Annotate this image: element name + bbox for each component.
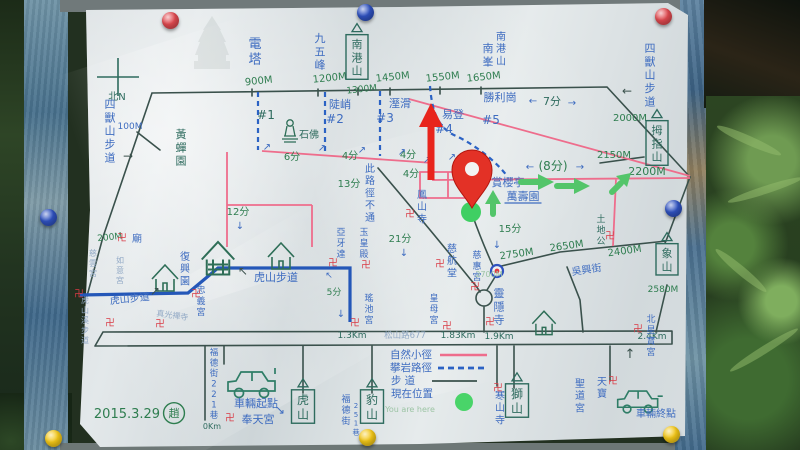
map-label: 萬壽園 [507, 189, 540, 203]
map-label-char: 雲 [89, 259, 97, 268]
map-label-char: 街 [341, 415, 350, 427]
temple-swastika-mark: 卍 [74, 289, 84, 300]
map-label-char: 園 [180, 275, 190, 287]
map-label-char: 南 [483, 42, 494, 55]
hand-drawn-arrow: ↖ [325, 271, 333, 281]
map-label: 慈雲宮 [89, 248, 97, 278]
map-label-char: 步 [81, 326, 89, 335]
map-label: 1550M [425, 70, 460, 85]
map-label-char: 航 [447, 254, 457, 267]
map-label-char: 山 [652, 151, 663, 164]
temple-swastika-mark: 卍 [633, 324, 643, 335]
map-label-char: 堂 [447, 267, 457, 279]
map-label-char: 隱 [494, 299, 505, 313]
temple-swastika-mark: 卍 [155, 319, 165, 330]
hand-drawn-arrow: → [568, 98, 576, 109]
hand-drawn-arrow: ↗ [150, 284, 160, 298]
map-label: #1 [257, 108, 275, 122]
map-label: 步 道 [391, 374, 416, 387]
map-label: 九五峰 [315, 32, 326, 72]
map-label: 7分 [543, 95, 561, 108]
shadow-top-right [704, 0, 800, 108]
temple-swastika-mark: 卍 [605, 231, 615, 242]
map-label-char: 不 [365, 201, 375, 212]
map-label: 13分 [338, 178, 361, 190]
map-label: 南港山 [496, 30, 506, 67]
map-label-char: 象 [662, 247, 673, 260]
palm-frond [728, 325, 800, 374]
map-label-char: 寺 [417, 213, 427, 225]
peak-triangle-icon [352, 24, 362, 32]
map-label-char: 虎 [297, 393, 309, 407]
map-label-char: 九 [315, 32, 326, 45]
car-start-icon [228, 368, 275, 398]
map-label: 如意宮 [116, 255, 124, 285]
temple-swastika-mark: 卍 [435, 259, 445, 270]
map-label: 土地公 [596, 213, 605, 247]
map-label: 易登 [442, 107, 464, 121]
map-label: 2580M [648, 285, 679, 295]
map-label: 900M [244, 75, 273, 89]
map-label: 21分 [389, 233, 412, 245]
hand-drawn-map-svg: 北N電塔900M九五峰1200M南港山1300M1450M1550M1650M南… [0, 0, 800, 450]
hand-drawn-arrow: ↓ [337, 309, 345, 320]
map-label-char: 道 [105, 150, 116, 164]
map-label-char: 路 [365, 174, 375, 187]
map-label: 象山 [662, 247, 673, 273]
map-label-char: 德 [341, 404, 350, 416]
map-label: 慈航堂 [447, 242, 457, 279]
map-label: 吳興街 [571, 261, 603, 278]
map-label: 黃蟬園 [176, 128, 187, 168]
map-label-char: 山 [495, 402, 505, 414]
map-label-char: 巷 [210, 411, 219, 421]
pavilion-icon [202, 242, 235, 275]
map-label-char: 峯 [483, 55, 494, 68]
map-label: 0Km [203, 422, 221, 431]
temple-swastika-mark: 卍 [485, 317, 495, 328]
map-label-char: 指 [652, 136, 663, 150]
map-label: 陡峭 [329, 98, 351, 111]
map-label-char: 豹 [366, 392, 378, 407]
map-label: 1.9Km [485, 332, 514, 342]
map-label-char: 宮 [196, 306, 205, 318]
map-label-char: 牙 [336, 238, 345, 249]
map-label: 5分 [327, 287, 342, 298]
map-label-char: 福 [210, 347, 219, 358]
hand-drawn-arrow: → [576, 162, 584, 173]
map-label-char: 山 [417, 201, 427, 213]
map-label-char: 5 [354, 411, 358, 419]
map-label-char: 山 [511, 401, 523, 415]
map-label: 石佛 [299, 128, 319, 141]
map-label-char: 皇 [359, 237, 368, 249]
map-label: 皇母宮 [429, 292, 438, 326]
map-label-char: 1 [211, 401, 216, 411]
map-label-char: 1 [354, 420, 358, 428]
map-label-char: 母 [429, 304, 438, 315]
temple-swastika-mark: 卍 [608, 376, 618, 387]
map-label: 2015.3.29 [94, 407, 160, 422]
map-label-char: 徑 [365, 186, 375, 199]
hand-drawn-arrow: → [123, 149, 133, 163]
map-label: 2650M [549, 239, 584, 255]
map-label-char: 步 [105, 138, 116, 151]
map-label-char: 意 [116, 265, 124, 275]
map-label-char: 道 [645, 94, 656, 108]
map-label-char: 宮 [364, 314, 373, 326]
map-label-char: 寶 [597, 387, 607, 400]
hand-drawn-arrow: ↗ [358, 145, 366, 156]
map-label: 4分 [342, 150, 358, 162]
stone-buddha-icon [282, 120, 298, 142]
map-label-char: 2 [354, 402, 358, 410]
map-label: 復興園 [180, 250, 190, 287]
map-label-char: 公 [596, 236, 605, 247]
map-label: 1200M [312, 71, 347, 86]
map-label-char: 玉 [359, 227, 368, 238]
palm-frond [713, 246, 769, 295]
green-arrow-upright [612, 183, 621, 192]
map-label: 251巷 [353, 402, 360, 437]
map-label-char: 宮 [575, 401, 585, 414]
hand-drawn-arrow: ↘ [275, 403, 285, 417]
map-label-char: 溪 [81, 315, 89, 325]
map-label: 2000M [613, 113, 647, 124]
map-label-char: 宮 [429, 314, 438, 326]
map-label: 6分 [284, 151, 300, 163]
temple-swastika-mark: 卍 [117, 233, 127, 244]
map-label-char: 地 [596, 224, 605, 236]
map-label-char: 山 [366, 407, 378, 421]
map-label: 南港山 [352, 38, 363, 78]
map-label-char: 2 [211, 390, 216, 400]
map-label: 聖道宮 [575, 378, 585, 414]
map-label: 南峯 [483, 42, 494, 68]
temple-swastika-mark: 卍 [225, 413, 235, 424]
map-label-char: 南 [496, 30, 506, 43]
map-label-char: 鳳 [417, 189, 427, 201]
map-label-char: 德 [210, 358, 219, 369]
compass-cross [97, 58, 139, 96]
map-label: 福德街221巷 [210, 347, 219, 421]
map-label-char: 黃 [176, 128, 187, 141]
map-label-char: 達 [336, 248, 345, 260]
map-label-char: 通 [365, 212, 375, 224]
map-label: #2 [326, 112, 344, 126]
map-label-char: 瑤 [364, 292, 373, 304]
map-label: 勝利崗 [484, 90, 517, 104]
map-label-char: 山 [662, 260, 673, 273]
map-label: 攀岩路徑 [390, 361, 432, 374]
foliage-right [706, 96, 800, 450]
map-label: 虎山溪步道 [81, 295, 89, 345]
map-label-char: 港 [352, 51, 363, 64]
map-label: 1.83Km [441, 331, 476, 341]
map-label: 玉皇殿 [359, 227, 368, 260]
map-label-char: 宮 [89, 268, 97, 278]
map-label: 車輛終點 [636, 407, 676, 420]
map-label: 松山路677 [384, 330, 426, 341]
map-label: 1650M [466, 70, 501, 85]
map-label-char: 電 [248, 37, 261, 52]
map-label: 100M [118, 122, 143, 132]
map-label: 寒山寺 [495, 389, 505, 426]
map-label-char: 寺 [495, 414, 505, 426]
map-label: 鳳山寺 [417, 189, 427, 225]
map-label-char: 五 [315, 45, 326, 58]
map-label: 福德街 [341, 393, 350, 427]
map-label-char: 山 [352, 65, 363, 78]
map-label: You are here [384, 405, 435, 414]
temple-swastika-mark: 卍 [191, 289, 201, 300]
map-label-char: 四 [105, 98, 116, 111]
map-label: 趙 [169, 406, 180, 420]
map-label: 車輛起點 [234, 396, 278, 410]
map-label-char: 寺 [494, 314, 505, 327]
map-label: 天寶 [597, 377, 607, 400]
map-label: 亞牙達 [336, 227, 345, 260]
map-label: 此路徑不通 [365, 162, 375, 224]
hand-drawn-arrow: ↓ [400, 248, 408, 259]
temple-swastika-mark: 卍 [105, 318, 115, 329]
map-label: #3 [376, 111, 394, 125]
map-label-char: 皇 [429, 292, 438, 304]
map-label-char: 山 [496, 55, 506, 67]
map-label-char: 獸 [645, 55, 656, 68]
map-label-char: 塔 [248, 53, 261, 68]
map-label-char: 道 [575, 389, 585, 402]
map-label: 虎山 [297, 393, 309, 421]
hand-drawn-arrow: ↗ [398, 147, 406, 158]
map-label-char: 宮 [116, 275, 124, 285]
location-pin-icon [452, 150, 492, 208]
map-label-char: 蟬 [176, 141, 187, 154]
map-label: 自然小徑 [390, 348, 432, 361]
map-label-char: 山 [105, 125, 116, 138]
map-label: 四獸山步道 [105, 98, 116, 164]
hand-drawn-arrow: ↗ [318, 143, 326, 154]
map-label-char: 獅 [511, 387, 523, 401]
map-label-char: 天 [597, 377, 607, 388]
palm-frond [715, 122, 783, 159]
pavilion-icon [268, 243, 294, 269]
photo-of-trail-map: 北N電塔900M九五峰1200M南港山1300M1450M1550M1650M南… [0, 0, 800, 450]
map-label: 瑤池宮 [364, 292, 373, 326]
map-label: 15分 [499, 223, 522, 235]
map-label: 虎山步道 [254, 270, 298, 284]
map-label: 現在位置 [391, 387, 433, 400]
map-label: (8分) [539, 159, 568, 173]
map-label-char: 土 [596, 213, 605, 225]
map-label: 2150M [597, 150, 631, 161]
hand-drawn-arrow: ← [526, 162, 534, 173]
map-label: 12分 [227, 206, 250, 218]
legend-green-dot [455, 393, 473, 411]
temple-swastika-mark: 卍 [350, 318, 360, 329]
temple-swastika-mark: 卍 [361, 260, 371, 271]
map-label-char: 四 [645, 42, 656, 55]
map-label-char: 港 [496, 43, 506, 55]
map-label-char: 殿 [359, 249, 368, 260]
map-label-char: 復 [180, 250, 190, 263]
map-label-char: 道 [81, 335, 89, 345]
temple-swastika-mark: 卍 [442, 321, 452, 332]
map-label-char: 聖 [575, 378, 585, 390]
map-label-char: 園 [176, 155, 187, 168]
map-label-char: 宮 [646, 346, 655, 358]
hand-drawn-arrow: ↑ [625, 347, 636, 362]
pagoda-watermark [194, 16, 230, 69]
map-label: 獅山 [511, 387, 523, 415]
map-label-char: 南 [352, 38, 363, 51]
red-route-arrow [419, 103, 443, 180]
map-label-char: 寶 [646, 335, 655, 347]
map-label: 拇指山 [652, 123, 663, 164]
map-label-char: 池 [364, 303, 373, 315]
map-label: #5 [482, 113, 500, 127]
map-label-char: 山 [645, 69, 656, 82]
map-label-char: 如 [116, 255, 124, 265]
map-label: 2700M [475, 270, 502, 279]
map-label-char: 街 [210, 368, 219, 379]
map-label-char: 巷 [353, 429, 360, 437]
hand-drawn-arrow: ↓ [236, 221, 244, 232]
map-label-char: 星 [646, 325, 655, 336]
map-label-char: 拇 [652, 123, 663, 137]
map-label: 4分 [403, 168, 419, 180]
map-label: 廟 [132, 232, 142, 245]
map-label: 溼滑 [389, 97, 411, 110]
map-label: 靈隱寺 [494, 287, 505, 327]
map-label-char: 慈 [89, 248, 97, 258]
temple-swastika-mark: 卍 [328, 258, 338, 269]
temple-swastika-mark: 卍 [493, 383, 503, 394]
temple-swastika-mark: 卍 [470, 282, 480, 293]
map-label: 1.3Km [338, 331, 367, 341]
hand-drawn-arrow: ↓ [493, 240, 501, 251]
map-label: 奉天宮 [242, 412, 275, 426]
map-label-char: 峰 [315, 59, 326, 72]
map-label-char: 亞 [336, 227, 345, 238]
map-label-char: 慈 [447, 242, 457, 255]
map-label-char: 山 [81, 305, 89, 315]
map-label: 四獸山步道 [645, 42, 656, 108]
map-label-char: 步 [645, 82, 656, 95]
map-label: 豹山 [366, 392, 378, 421]
map-label: 2200M [628, 165, 666, 178]
hand-drawn-arrow: ← [622, 84, 632, 98]
map-label: 電塔 [248, 37, 261, 68]
label-pointer-100m [137, 132, 160, 150]
map-label-char: 獸 [105, 111, 116, 124]
map-label: 1450M [375, 70, 410, 85]
map-label: 1300M [346, 83, 378, 96]
map-label-char: 山 [297, 407, 309, 421]
hand-drawn-arrow: ↖ [238, 264, 248, 278]
hand-drawn-arrow: ↗ [263, 142, 271, 153]
labels-layer: 北N電塔900M九五峰1200M南港山1300M1450M1550M1650M南… [81, 24, 678, 437]
peak-triangle-icon [652, 110, 662, 118]
map-label-char: 此 [365, 162, 375, 175]
map-label-char: 靈 [494, 287, 505, 300]
map-label-char: 興 [180, 263, 190, 275]
hand-drawn-arrow: ← [529, 96, 537, 107]
temple-swastika-mark: 卍 [405, 209, 415, 220]
map-label-char: 北 [646, 314, 655, 325]
map-label-char: 福 [341, 393, 350, 405]
map-label-char: 2 [211, 380, 216, 390]
palm-frond [727, 174, 800, 206]
legend-symbols [432, 355, 487, 411]
map-label-char: 慈 [472, 249, 481, 261]
